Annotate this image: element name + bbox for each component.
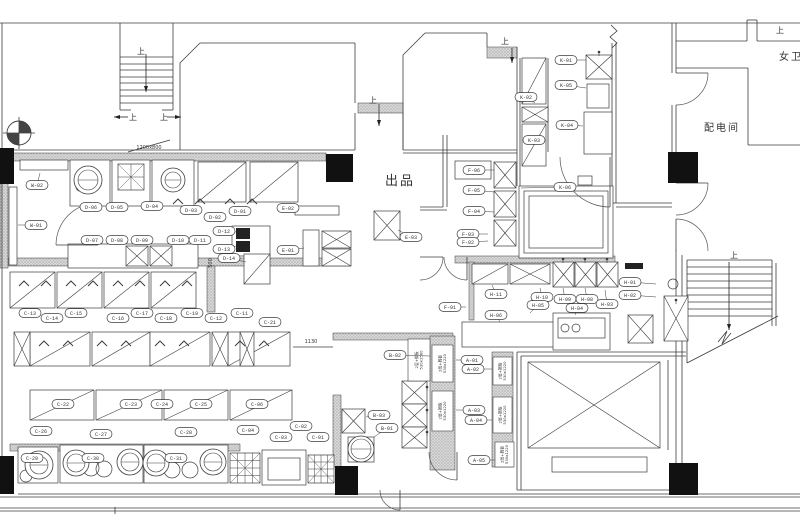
tag-K-01: K-01 — [560, 58, 572, 64]
tag-B-03: B-03 — [373, 413, 385, 419]
equipment-7 — [295, 206, 339, 215]
tag-F-06: F-06 — [468, 168, 480, 174]
tag-C-31: C-31 — [170, 456, 182, 462]
tag-D-07: D-07 — [86, 238, 98, 244]
tag-E-03: E-03 — [405, 235, 417, 241]
dim-1130: 1130 — [305, 339, 318, 345]
dim-500: 500 — [208, 258, 214, 268]
arrow-head-3 — [377, 120, 381, 126]
tag-F-05: F-05 — [468, 188, 480, 194]
tag-C-19: C-19 — [186, 311, 198, 317]
tag-H-05: H-05 — [532, 303, 544, 309]
wall-line-76 — [687, 316, 778, 363]
tag-A-03: A-03 — [468, 408, 480, 414]
tag-H-04: H-04 — [571, 306, 583, 312]
equipment-12 — [578, 176, 592, 185]
equipment-0 — [20, 160, 68, 170]
arrow-head-0 — [144, 86, 148, 92]
tag-C-17: C-17 — [136, 311, 148, 317]
shelf-unit-label2-4: 530x1220 — [502, 405, 507, 425]
tag-C-21: C-21 — [264, 320, 276, 326]
tag-D-09: D-09 — [136, 238, 148, 244]
tag-D-13: D-13 — [218, 247, 230, 253]
tag-K-03: K-03 — [528, 138, 540, 144]
tag-C-01: C-01 — [312, 435, 324, 441]
equipment-21 — [558, 318, 605, 338]
tag-C-28: C-28 — [180, 430, 192, 436]
shelf-unit-label2-3: 530x1220 — [502, 361, 507, 381]
tag-E-01: E-01 — [282, 248, 294, 254]
shelf-unit-label2-5: 530x1220 — [504, 444, 509, 464]
tag-C-12: C-12 — [210, 316, 222, 322]
solid-unit-0 — [236, 228, 250, 239]
tag-F-01: F-01 — [444, 305, 456, 311]
tag-D-03: D-03 — [185, 208, 197, 214]
shelf-unit-label2-2: 530x1220 — [442, 401, 447, 421]
label-up-stair-right: 上 — [160, 113, 168, 122]
tag-C-30: C-30 — [87, 456, 99, 462]
tag-A-04: A-04 — [470, 418, 482, 424]
solid-unit-1 — [236, 241, 250, 252]
datum-wedge-1 — [19, 121, 31, 133]
label-nvwei: 女卫 — [779, 50, 800, 63]
equipment-10 — [587, 84, 609, 108]
tag-C-26: C-26 — [35, 429, 47, 435]
door-arc-5 — [676, 183, 708, 215]
structural-column-3 — [0, 456, 14, 494]
structural-column-5 — [669, 463, 698, 495]
tag-C-04: C-04 — [242, 428, 254, 434]
tag-D-06: D-06 — [85, 205, 97, 211]
structural-column-0 — [0, 148, 14, 184]
tag-K-05: K-05 — [560, 83, 572, 89]
door-arc-8 — [380, 490, 400, 510]
equipment-11 — [584, 112, 612, 154]
equipment-circle-8 — [668, 279, 678, 289]
tag-H-09: H-09 — [559, 297, 571, 303]
tag-D-10: D-10 — [172, 238, 184, 244]
tag-A-05: A-05 — [473, 458, 485, 464]
tag-D-12: D-12 — [218, 229, 230, 235]
structural-column-4 — [335, 466, 358, 495]
tag-W-02: W-02 — [31, 183, 43, 189]
label-up-top-right: 上 — [776, 26, 784, 35]
tag-E-02: E-02 — [282, 206, 294, 212]
tag-D-08: D-08 — [111, 238, 123, 244]
hatched-wall-11 — [487, 47, 517, 58]
tag-H-06: H-06 — [490, 313, 502, 319]
tag-K-02: K-02 — [520, 95, 532, 101]
equipment-17 — [268, 458, 300, 480]
tag-C-03: C-03 — [275, 435, 287, 441]
door-arc-1 — [420, 257, 443, 280]
tag-C-24: C-24 — [156, 402, 168, 408]
shelf-unit-label2-1: 530x1220 — [442, 353, 447, 373]
tag-C-13: C-13 — [24, 311, 36, 317]
tag-H-10: H-10 — [536, 295, 548, 301]
tag-C-22: C-22 — [57, 402, 69, 408]
hatched-wall-7 — [207, 266, 215, 312]
equipment-1 — [9, 187, 17, 265]
tag-C-15: C-15 — [70, 311, 82, 317]
label-up-right-stair: 上 — [730, 251, 738, 260]
tag-A-02: A-02 — [467, 367, 479, 373]
tag-B-02: B-02 — [389, 353, 401, 359]
label-up-roomb: 上 — [501, 37, 509, 46]
tag-B-01: B-01 — [381, 426, 393, 432]
tag-C-25: C-25 — [195, 402, 207, 408]
wall-line-25 — [403, 33, 425, 55]
label-peidianjian: 配电间 — [704, 121, 740, 134]
tag-H-11: H-11 — [490, 292, 502, 298]
tag-H-01: H-01 — [624, 280, 636, 286]
tag-D-11: D-11 — [194, 238, 206, 244]
tag-C-06: C-06 — [251, 402, 263, 408]
tag-W-01: W-01 — [30, 223, 42, 229]
label-up-corridor: 上 — [369, 96, 377, 105]
break-symbol-1 — [718, 331, 731, 344]
tag-K-06: K-06 — [559, 185, 571, 191]
tag-C-27: C-27 — [95, 432, 107, 438]
tag-D-14: D-14 — [223, 256, 235, 262]
tag-C-29: C-29 — [26, 456, 38, 462]
floor-plan-page: 2层+搁板530x15602层+搁板530x12202层+搁板530x12202… — [0, 0, 800, 520]
shelf-unit-label2-0: 530x1560 — [419, 350, 424, 370]
equipment-19 — [462, 322, 554, 347]
tag-D-04: D-04 — [146, 204, 158, 210]
tag-H-08: H-08 — [581, 297, 593, 303]
tag-C-02: C-02 — [295, 424, 307, 430]
arrow-head-1 — [114, 115, 120, 119]
door-arc-6 — [676, 219, 708, 251]
tag-C-23: C-23 — [125, 402, 137, 408]
tag-A-01: A-01 — [466, 358, 478, 364]
wall-line-19 — [180, 43, 200, 63]
tag-D-05: D-05 — [111, 205, 123, 211]
datum-wedge-2 — [7, 133, 19, 145]
structural-column-1 — [326, 154, 353, 182]
equipment-8 — [303, 230, 319, 266]
structural-column-2 — [668, 152, 698, 183]
equipment-layer — [9, 51, 688, 485]
arrow-head-4 — [510, 57, 514, 63]
tag-H-03: H-03 — [601, 302, 613, 308]
tag-F-04: F-04 — [468, 209, 480, 215]
break-symbol-0 — [610, 25, 617, 48]
equipment-22 — [552, 457, 647, 472]
door-arc-4 — [676, 73, 708, 105]
tag-F-03: F-03 — [462, 232, 474, 238]
solid-unit-2 — [625, 263, 643, 269]
tag-C-16: C-16 — [112, 316, 124, 322]
label-up-stair-top: 上 — [137, 47, 145, 56]
hatched-wall-10 — [358, 103, 403, 113]
label-chupin: 出品 — [385, 174, 415, 189]
tag-H-02: H-02 — [624, 293, 636, 299]
tag-C-11: C-11 — [236, 311, 248, 317]
label-up-stair-left: 上 — [129, 113, 137, 122]
hatched-wall-12 — [0, 183, 8, 268]
dim-stair: 1200x800 — [136, 145, 161, 151]
tag-D-01: D-01 — [234, 209, 246, 215]
tag-C-18: C-18 — [160, 316, 172, 322]
kitchen-floor-plan-drawing: 2层+搁板530x15602层+搁板530x12202层+搁板530x12202… — [0, 0, 800, 520]
tag-D-02: D-02 — [209, 215, 221, 221]
arrow-head-5 — [727, 324, 731, 330]
tag-C-14: C-14 — [46, 316, 58, 322]
tag-K-04: K-04 — [561, 123, 573, 129]
tag-F-02: F-02 — [462, 240, 474, 246]
